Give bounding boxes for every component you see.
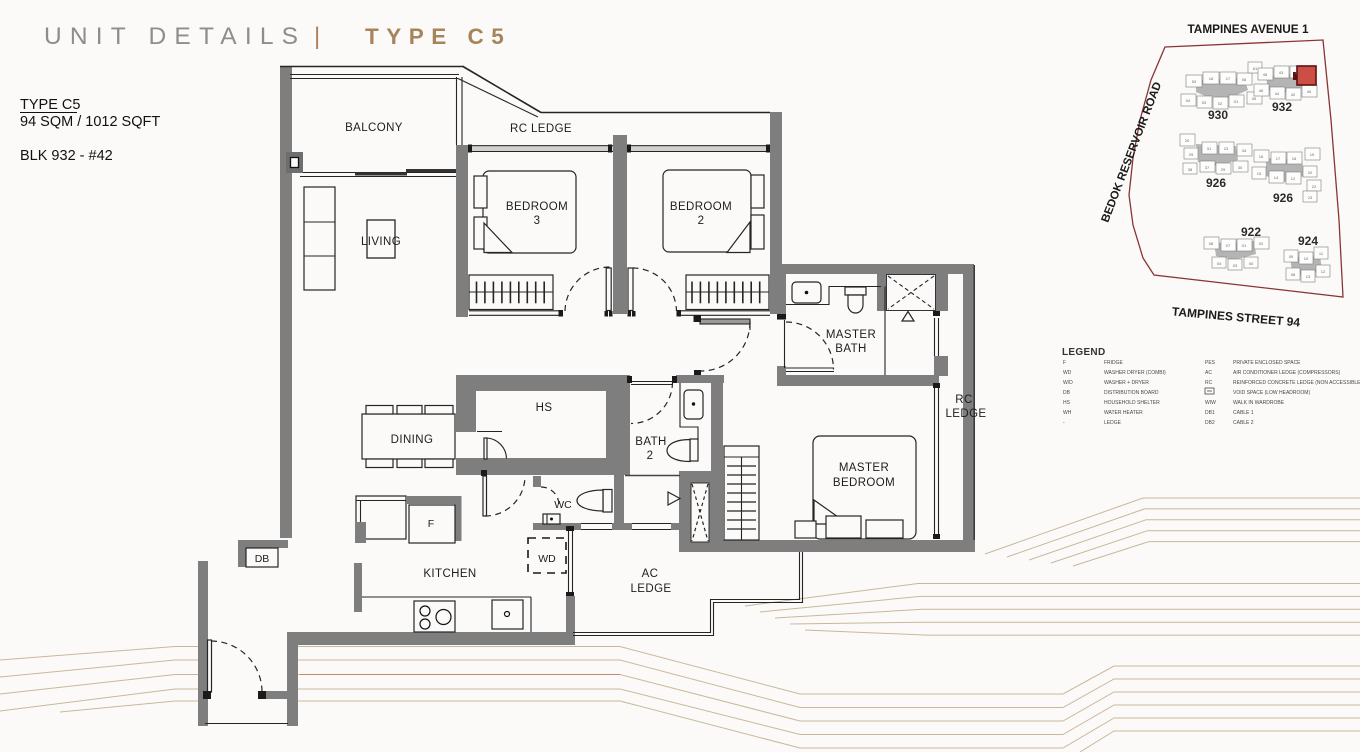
svg-text:08: 08 (1242, 77, 1247, 82)
svg-text:WATER HEATER: WATER HEATER (1104, 410, 1143, 416)
svg-text:922: 922 (1241, 225, 1261, 239)
svg-text:UNIT DETAILS: UNIT DETAILS (44, 23, 306, 50)
svg-text:05: 05 (1252, 96, 1257, 101)
svg-text:CABLE 1: CABLE 1 (1233, 410, 1254, 416)
svg-text:13: 13 (1306, 274, 1311, 279)
svg-text:16: 16 (1259, 154, 1264, 159)
svg-text:WC: WC (554, 499, 572, 511)
svg-text:932: 932 (1272, 100, 1292, 114)
svg-text:926: 926 (1206, 176, 1226, 190)
svg-text:REINFORCED CONCRETE LEDGE (NON: REINFORCED CONCRETE LEDGE (NON ACCESSIBL… (1233, 380, 1360, 386)
svg-text:17: 17 (1276, 156, 1281, 161)
svg-text:LIVING: LIVING (361, 236, 401, 248)
svg-text:22: 22 (1312, 184, 1317, 189)
svg-text:DB1: DB1 (1205, 410, 1215, 416)
svg-text:2: 2 (647, 450, 654, 462)
svg-text:HS: HS (536, 402, 553, 414)
svg-text:DB2: DB2 (1205, 420, 1215, 426)
svg-text:15: 15 (1257, 171, 1262, 176)
svg-text:HOUSEHOLD SHELTER: HOUSEHOLD SHELTER (1104, 400, 1160, 406)
svg-text:HS: HS (1063, 400, 1071, 406)
svg-text:12: 12 (1291, 176, 1296, 181)
svg-text:LEDGE: LEDGE (946, 408, 987, 420)
svg-text:04: 04 (1186, 98, 1191, 103)
svg-text:61: 61 (1253, 66, 1258, 71)
svg-text:CABLE 2: CABLE 2 (1233, 420, 1254, 426)
svg-text:46: 46 (1259, 88, 1264, 93)
svg-text:BALCONY: BALCONY (345, 122, 403, 134)
svg-text:BEDROOM: BEDROOM (833, 477, 895, 489)
svg-text:08: 08 (1291, 272, 1296, 277)
svg-text:BEDROOM: BEDROOM (506, 201, 568, 213)
svg-text:AIR CONDITIONER LEDGE (COMPRES: AIR CONDITIONER LEDGE (COMPRESSORS) (1233, 370, 1341, 376)
svg-text:23: 23 (1224, 146, 1229, 151)
svg-text:09: 09 (1289, 254, 1294, 259)
svg-text:34: 34 (1242, 148, 1247, 153)
svg-text:03: 03 (1202, 100, 1207, 105)
svg-text:03: 03 (1233, 263, 1238, 268)
svg-text:01: 01 (1234, 99, 1239, 104)
svg-text:37: 37 (1205, 165, 1210, 170)
svg-text:23: 23 (1308, 195, 1313, 200)
svg-text:30: 30 (1238, 165, 1243, 170)
svg-text:F: F (428, 518, 434, 530)
svg-text:02: 02 (1259, 241, 1264, 246)
svg-text:W/D: W/D (1063, 380, 1073, 386)
svg-text:02: 02 (1218, 101, 1223, 106)
svg-text:BEDROOM: BEDROOM (670, 201, 732, 213)
svg-text:04: 04 (1217, 261, 1222, 266)
svg-text:924: 924 (1298, 234, 1318, 248)
svg-text:VOID SPACE (LOW HEADROOM): VOID SPACE (LOW HEADROOM) (1233, 390, 1310, 396)
svg-text:WIW: WIW (1205, 400, 1216, 406)
svg-text:38: 38 (1188, 167, 1193, 172)
svg-text:00: 00 (1249, 261, 1254, 266)
svg-text:930: 930 (1208, 108, 1228, 122)
svg-text:01: 01 (1242, 243, 1247, 248)
svg-text:12: 12 (1321, 269, 1326, 274)
svg-text:TAMPINES AVENUE 1: TAMPINES AVENUE 1 (1187, 22, 1308, 36)
svg-text:94 SQM / 1012 SQFT: 94 SQM / 1012 SQFT (20, 114, 160, 130)
svg-text:BATH: BATH (835, 343, 866, 355)
svg-text:31: 31 (1207, 146, 1212, 151)
svg-text:LEGEND: LEGEND (1062, 347, 1105, 358)
svg-text:45: 45 (1263, 72, 1268, 77)
svg-text:RC: RC (955, 394, 972, 406)
svg-text:LEDGE: LEDGE (631, 583, 672, 595)
svg-text:RC: RC (1205, 380, 1213, 386)
svg-text:MASTER: MASTER (839, 462, 889, 474)
svg-text:KITCHEN: KITCHEN (423, 568, 476, 580)
svg-text:PRIVATE ENCLOSED SPACE: PRIVATE ENCLOSED SPACE (1233, 360, 1301, 366)
svg-text:BATH: BATH (635, 436, 666, 448)
svg-text:43: 43 (1279, 70, 1284, 75)
svg-text:WD: WD (538, 553, 556, 565)
svg-text:2: 2 (698, 215, 705, 227)
svg-text:TYPE C5: TYPE C5 (365, 24, 511, 49)
svg-text:18: 18 (1209, 76, 1214, 81)
svg-text:29: 29 (1189, 152, 1194, 157)
svg-text:29: 29 (1221, 167, 1226, 172)
svg-text:DB: DB (1063, 390, 1071, 396)
svg-text:14: 14 (1274, 175, 1279, 180)
svg-text:42: 42 (1291, 92, 1296, 97)
svg-text:WALK IN WARDROBE: WALK IN WARDROBE (1233, 400, 1285, 406)
svg-text:MASTER: MASTER (826, 329, 876, 341)
svg-text:20: 20 (1308, 170, 1313, 175)
svg-text:DB: DB (255, 553, 270, 565)
svg-text:3: 3 (534, 215, 541, 227)
svg-text:DINING: DINING (391, 434, 434, 446)
svg-text:TYPE C5: TYPE C5 (20, 97, 80, 113)
svg-text:10: 10 (1304, 256, 1309, 261)
svg-text:18: 18 (1292, 156, 1297, 161)
svg-text:FRIDGE: FRIDGE (1104, 360, 1124, 366)
svg-text:17: 17 (1226, 76, 1231, 81)
svg-text:WASHER + DRYER: WASHER + DRYER (1104, 380, 1149, 386)
svg-text:LEDGE: LEDGE (1104, 420, 1122, 426)
svg-text:WD: WD (1063, 370, 1072, 376)
svg-text:RC LEDGE: RC LEDGE (510, 123, 572, 135)
svg-text:DISTRIBUTION BOARD: DISTRIBUTION BOARD (1104, 390, 1159, 396)
svg-text:BLK 932 - #42: BLK 932 - #42 (20, 148, 113, 164)
svg-text:08: 08 (1209, 241, 1214, 246)
svg-text:44: 44 (1275, 91, 1280, 96)
svg-text:53: 53 (1192, 79, 1197, 84)
svg-text:41: 41 (1295, 70, 1300, 75)
svg-text:40: 40 (1307, 89, 1312, 94)
svg-text:F: F (1063, 360, 1066, 366)
svg-text:AC: AC (1205, 370, 1212, 376)
svg-text:07: 07 (1226, 243, 1231, 248)
svg-text:926: 926 (1273, 191, 1293, 205)
svg-text:AC: AC (642, 568, 659, 580)
svg-text:20: 20 (1185, 138, 1190, 143)
svg-text:PES: PES (1205, 360, 1216, 366)
svg-text:WASHER DRYER (COMBI): WASHER DRYER (COMBI) (1104, 370, 1166, 376)
svg-text:WH: WH (1063, 410, 1072, 416)
svg-text:19: 19 (1310, 152, 1315, 157)
svg-text:|: | (314, 23, 320, 50)
